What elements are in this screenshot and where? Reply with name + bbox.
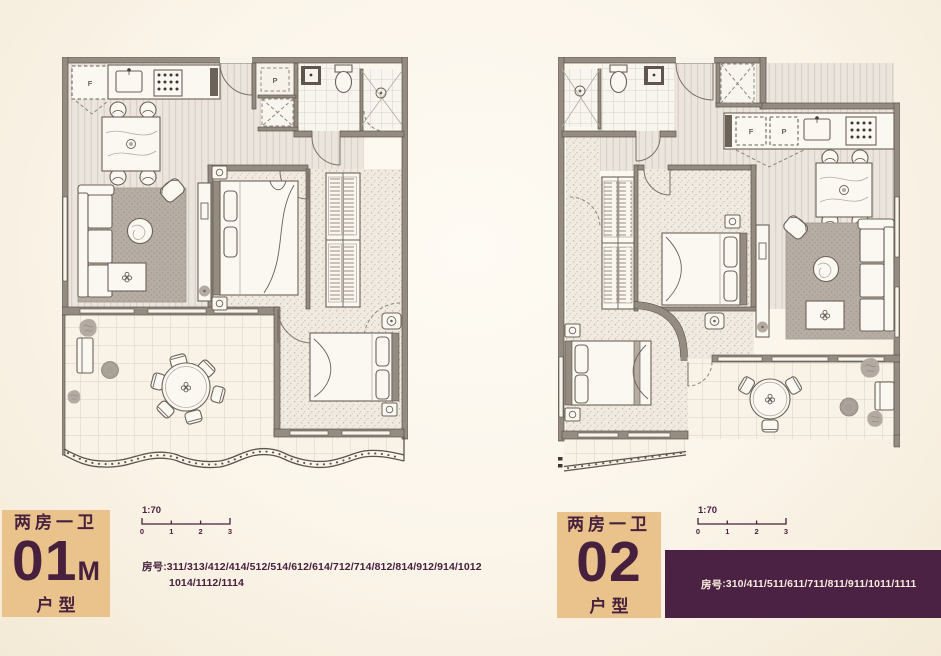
scale-tick: 3 <box>784 527 788 536</box>
toilet <box>335 65 352 72</box>
fridge-label: F <box>88 79 93 88</box>
fridge-label: F <box>749 127 754 136</box>
room-numbers-banner-02: 房号:310/411/511/611/711/811/911/1011/1111 <box>665 550 941 618</box>
scale-bar-02: 1:70 0 1 2 3 <box>696 503 792 537</box>
scale-tick: 1 <box>725 527 729 536</box>
coffee-table <box>814 257 839 282</box>
scale-tick: 0 <box>140 527 144 536</box>
unit-card-02: 两房一卫 02 户型 <box>557 512 661 618</box>
pantry-label: P <box>272 76 277 85</box>
unit-code: 01M <box>12 534 100 590</box>
scale-tick: 2 <box>755 527 759 536</box>
unit-code-number: 01 <box>12 534 77 590</box>
scale-ratio: 1:70 <box>142 505 161 516</box>
tv-console <box>198 183 211 301</box>
room-numbers-prefix: 房号 <box>701 577 722 592</box>
room-numbers-values: :310/411/511/611/711/811/911/1011/1111 <box>722 578 916 590</box>
unit-category-label: 户型 <box>32 591 81 616</box>
room-numbers-line1: 房号:311/313/412/414/512/514/612/614/712/7… <box>142 560 482 576</box>
scale-tick: 2 <box>199 527 203 536</box>
room-numbers-01m: 房号:311/313/412/414/512/514/612/614/712/7… <box>142 560 482 592</box>
scale-bar-01m: 1:70 0 1 2 3 <box>140 503 236 537</box>
terrace-table <box>162 363 210 411</box>
terrace-bench <box>77 338 93 373</box>
terrace-lounger <box>875 382 894 410</box>
room-numbers-prefix: 房号 <box>142 561 163 573</box>
scale-tick: 0 <box>696 527 700 536</box>
room-numbers-values: :311/313/412/414/512/514/612/614/712/714… <box>163 561 481 573</box>
unit-code-number: 02 <box>576 535 641 591</box>
floor-plan-02: F P <box>558 57 900 487</box>
unit-category-label: 户型 <box>585 592 634 617</box>
stove <box>846 117 876 145</box>
floor-plan-sheet: F P <box>0 0 941 656</box>
stove <box>154 70 182 96</box>
unit-code: 02 <box>576 535 641 591</box>
scale-ratio: 1:70 <box>698 505 717 516</box>
floor-plan-01m: F P <box>62 57 408 489</box>
tv-console <box>756 225 769 337</box>
scale-tick: 3 <box>228 527 232 536</box>
scale-tick: 1 <box>169 527 173 536</box>
room-numbers-line2: 1014/1112/1114 <box>142 576 482 592</box>
coffee-table <box>128 219 153 244</box>
pantry-label: P <box>781 127 786 136</box>
unit-card-01m: 两房一卫 01M 户型 <box>2 510 110 617</box>
unit-code-suffix: M <box>77 558 100 584</box>
master-bedroom-01m <box>212 166 308 310</box>
toilet <box>610 65 627 72</box>
terrace-table <box>750 379 790 419</box>
wardrobe-01m <box>326 173 360 307</box>
sofa <box>858 219 894 331</box>
